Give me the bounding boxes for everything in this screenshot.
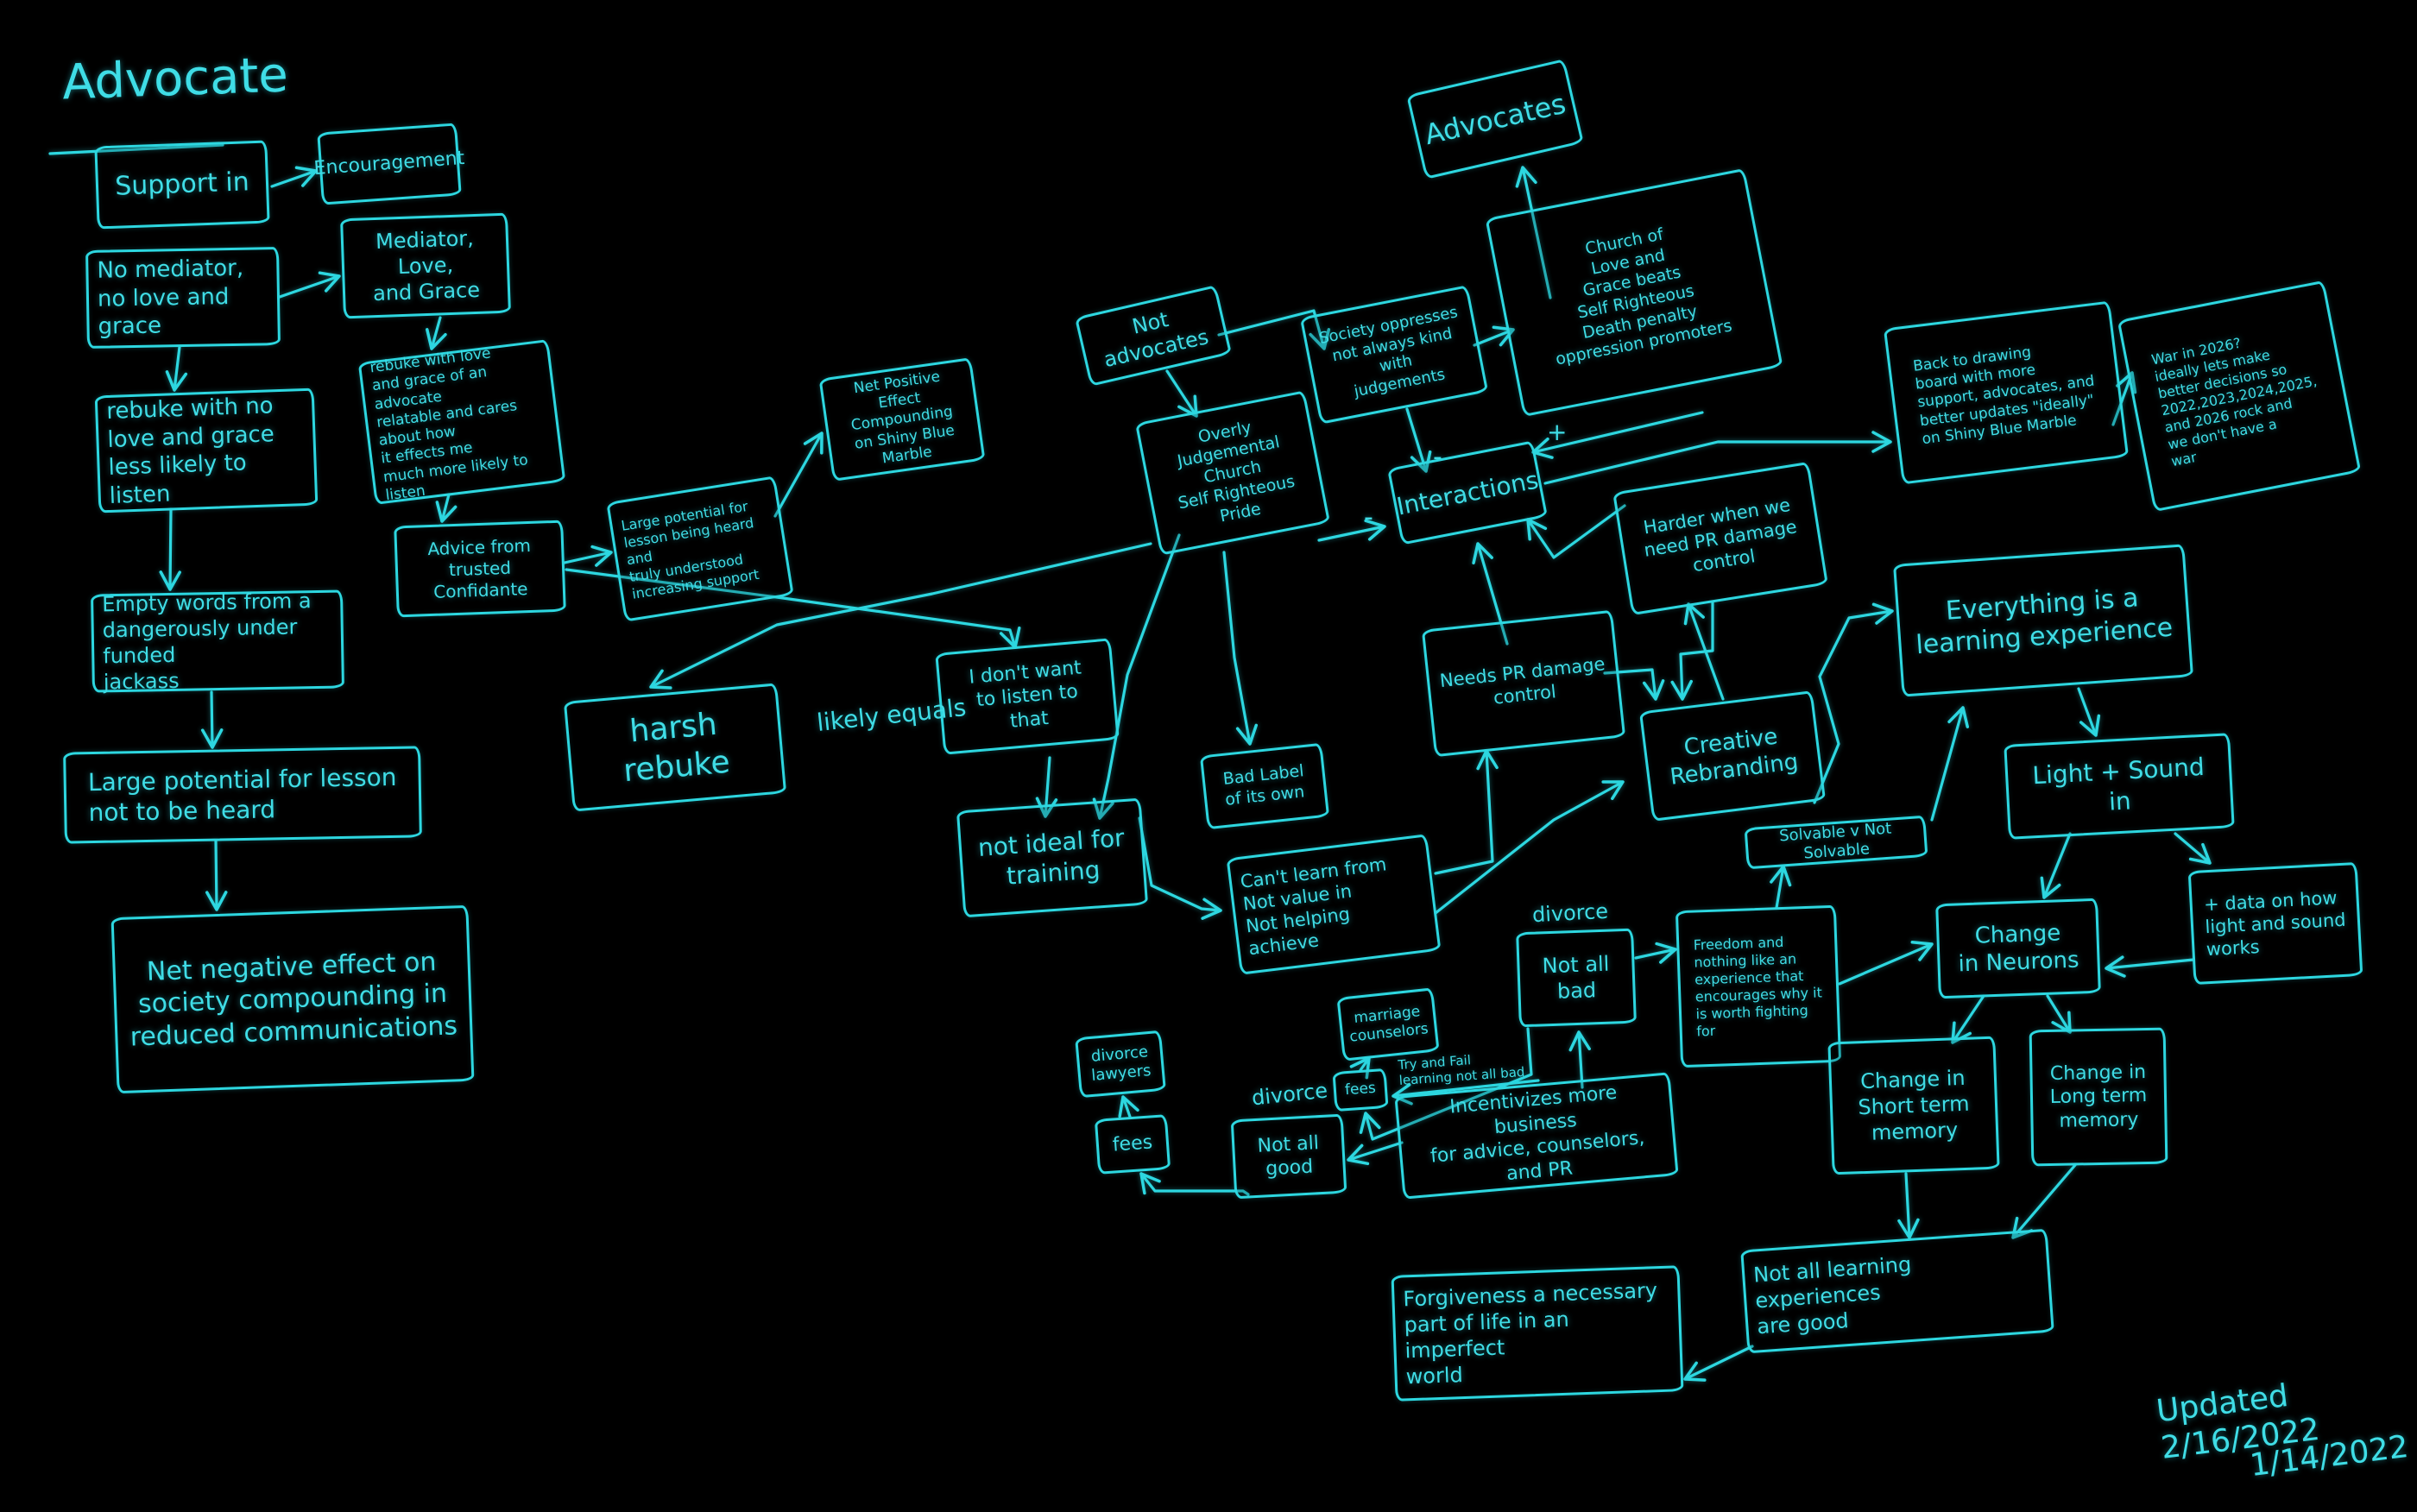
edge-fees2-to-marriage [1360,1058,1369,1070]
node-text-divorce-lawyers: divorce lawyers [1089,1043,1152,1087]
edge-notalllearning-to-forgiveness [1685,1346,1752,1379]
edge-freedom-to-solvable [1776,866,1783,908]
edge-notadvocates-to-overly [1167,371,1196,416]
node-text-advice-confidante: Advice from trusted Confidante [406,534,555,604]
node-text-mediator-love-grace: Mediator, Love, and Grace [351,224,499,307]
node-text-change-long-term: Change in Long term memory [2049,1061,2148,1133]
edge-notallgood-to-fees1 [1141,1174,1248,1194]
node-support-in[interactable]: Support in [94,141,269,230]
edge-support-to-encouragement [272,171,316,186]
edge-data-to-neurons [2106,960,2193,968]
node-freedom[interactable]: Freedom and nothing like an experience t… [1675,905,1841,1068]
node-back-to-drawing[interactable]: Back to drawing board with more support,… [1884,301,2129,485]
edge-solvable-to-everything [1932,708,1963,820]
node-text-support-in: Support in [115,167,250,204]
edge-harder-to-creative [1681,602,1713,699]
node-not-all-good[interactable]: Not all good [1231,1114,1347,1200]
node-text-harder-pr: Harder when we need PR damage control [1639,493,1802,584]
edge-cantlearn-to-creative [1436,782,1623,913]
node-divorce-lawyers[interactable]: divorce lawyers [1075,1030,1166,1098]
page-title[interactable]: Advocate [61,46,289,111]
node-text-marriage-counselors: marriage counselors [1347,1002,1429,1047]
plus-sign[interactable]: + [1547,418,1567,447]
node-text-everything-learning: Everything is a learning experience [1913,579,2174,662]
node-no-mediator[interactable]: No mediator, no love and grace [85,247,281,349]
edge-advice-to-largeheard [565,552,611,563]
node-fees-2[interactable]: fees [1332,1068,1388,1112]
node-text-net-positive: Net Positive Effect Compounding on Shiny… [830,365,973,474]
node-text-empty-words: Empty words from a dangerously under fun… [102,588,333,696]
node-text-fees-1: fees [1112,1131,1153,1158]
node-text-society-oppresses: Society oppresses not always kind with j… [1314,302,1474,406]
edge-freedom-to-neurons [1840,944,1932,984]
node-rebuke-no-love[interactable]: rebuke with no love and grace less likel… [95,388,319,513]
edge-notideal-to-cantlearn [1139,818,1221,910]
node-text-not-all-good: Not all good [1257,1131,1321,1182]
node-text-creative-rebranding: Creative Rebranding [1665,721,1800,792]
node-net-negative[interactable]: Net negative effect on society compoundi… [111,905,475,1093]
whiteboard-canvas[interactable]: Support inEncouragementNo mediator, no l… [0,0,2417,1512]
node-text-not-all-bad: Not all bad [1542,951,1611,1005]
node-text-forgiveness: Forgiveness a necessary part of life in … [1403,1277,1672,1390]
node-creative-rebranding[interactable]: Creative Rebranding [1639,690,1826,822]
node-fees-1[interactable]: fees [1095,1114,1171,1175]
node-mediator-love-grace[interactable]: Mediator, Love, and Grace [340,213,511,319]
node-text-not-ideal-training: not ideal for training [977,822,1127,893]
node-text-cant-learn: Can't learn from Not value in Not helpin… [1239,848,1428,961]
node-change-long-term[interactable]: Change in Long term memory [2029,1028,2168,1167]
minus-sign-1[interactable]: - [1433,442,1442,473]
node-data-light-sound[interactable]: + data on how light and sound works [2188,862,2363,985]
node-net-positive[interactable]: Net Positive Effect Compounding on Shiny… [819,357,986,482]
node-text-church-of-love: Church of Love and Grace beats Self Righ… [1534,215,1733,370]
node-harsh-rebuke[interactable]: harsh rebuke [564,683,786,811]
node-text-not-all-learning: Not all learning experiences are good [1752,1243,2042,1340]
edge-lightsound-to-data [2175,834,2210,863]
node-rebuke-with-love[interactable]: rebuke with love and grace of an advocat… [358,339,566,505]
node-text-interactions: Interactions [1394,464,1541,521]
node-text-change-short-term: Change in Short term memory [1857,1065,1971,1146]
edge-incentivizes-to-notallgood [1348,1143,1402,1160]
edge-emptywords-to-largelesson [211,692,212,747]
node-text-incentivizes: Incentivizes more business for advice, c… [1406,1077,1667,1194]
edge-neurons-to-shortterm [1953,996,1984,1043]
node-light-sound[interactable]: Light + Sound in [2004,733,2234,840]
node-not-all-learning[interactable]: Not all learning experiences are good [1740,1229,2054,1354]
node-empty-words[interactable]: Empty words from a dangerously under fun… [91,589,344,692]
edge-overly-to-interactions [1319,526,1385,540]
edge-nomediator-to-mediator [280,276,339,297]
node-war-2026[interactable]: War in 2026? ideally lets make better de… [2117,280,2362,512]
node-text-advocates: Advocates [1422,86,1569,152]
node-large-potential-lesson[interactable]: Large potential for lesson not to be hea… [63,746,422,843]
node-forgiveness[interactable]: Forgiveness a necessary part of life in … [1392,1265,1684,1402]
edge-creative-to-everything [1814,611,1892,803]
edge-notallbad-to-freedom [1636,949,1675,958]
node-marriage-counselors[interactable]: marriage counselors [1336,987,1439,1061]
node-text-rebuke-with-love: rebuke with love and grace of an advocat… [369,339,554,506]
edge-rebukenolove-to-emptywords [170,509,171,589]
node-text-needs-pr: Needs PR damage control [1439,652,1609,715]
node-not-ideal-training[interactable]: not ideal for training [956,798,1148,918]
minus-sign-2[interactable]: - [1364,502,1373,533]
edge-overly-to-badlabel [1224,552,1250,744]
node-bad-label[interactable]: Bad Label of its own [1200,743,1329,829]
divorce-label-2[interactable]: divorce [1531,899,1608,928]
node-text-encouragement: Encouragement [313,147,465,181]
node-text-light-sound: Light + Sound in [2032,752,2207,821]
node-not-all-bad[interactable]: Not all bad [1516,929,1637,1028]
node-text-bad-label: Bad Label of its own [1222,761,1307,810]
edge-rebukewithlove-to-advice [442,495,449,521]
node-encouragement[interactable]: Encouragement [317,123,461,205]
node-text-data-light-sound: + data on how light and sound works [2203,885,2347,961]
node-text-back-to-drawing: Back to drawing board with more support,… [1912,337,2100,450]
node-text-freedom: Freedom and nothing like an experience t… [1693,932,1823,1040]
edge-lightsound-to-neurons [2044,834,2070,898]
node-text-harsh-rebuke: harsh rebuke [577,700,774,794]
node-text-large-potential-lesson: Large potential for lesson not to be hea… [88,762,398,828]
node-text-large-potential-heard: Large potential for lesson being heard a… [620,495,780,603]
edge-everything-to-lightsound [2079,689,2096,735]
node-text-i-dont-want: I don't want to listen to that [968,656,1086,737]
node-text-overly-judgemental: Overly Judgemental Church Self Righteous… [1149,408,1316,538]
node-everything-learning[interactable]: Everything is a learning experience [1893,544,2193,696]
node-change-neurons[interactable]: Change in Neurons [1935,898,2101,999]
node-advice-confidante[interactable]: Advice from trusted Confidante [394,520,566,618]
node-needs-pr[interactable]: Needs PR damage control [1422,610,1625,757]
node-cant-learn[interactable]: Can't learn from Not value in Not helpin… [1227,834,1442,975]
edge-largelesson-to-netnegative [216,841,217,910]
edge-fees1-to-lawyers [1123,1097,1130,1117]
node-change-short-term[interactable]: Change in Short term memory [1827,1036,1999,1175]
node-text-no-mediator: No mediator, no love and grace [97,255,269,342]
edge-neurons-to-longterm [2048,996,2070,1032]
node-text-rebuke-no-love: rebuke with no love and grace less likel… [106,391,306,510]
edge-largeheard-to-netpositive [775,433,822,516]
node-text-net-negative: Net negative effect on society compoundi… [127,945,458,1054]
node-text-change-neurons: Change in Neurons [1957,918,2079,979]
edge-cantlearn-to-needspr [1436,751,1492,873]
edge-shortterm-to-notalllearning [1906,1174,1909,1238]
edge-nomediator-to-rebukenolove [174,347,180,390]
edge-mediator-to-rebukewithlove [432,318,440,349]
edge-longterm-to-notalllearning [2013,1165,2075,1238]
node-text-war-2026: War in 2026? ideally lets make better de… [2150,322,2329,470]
node-text-fees-2: fees [1344,1080,1376,1100]
